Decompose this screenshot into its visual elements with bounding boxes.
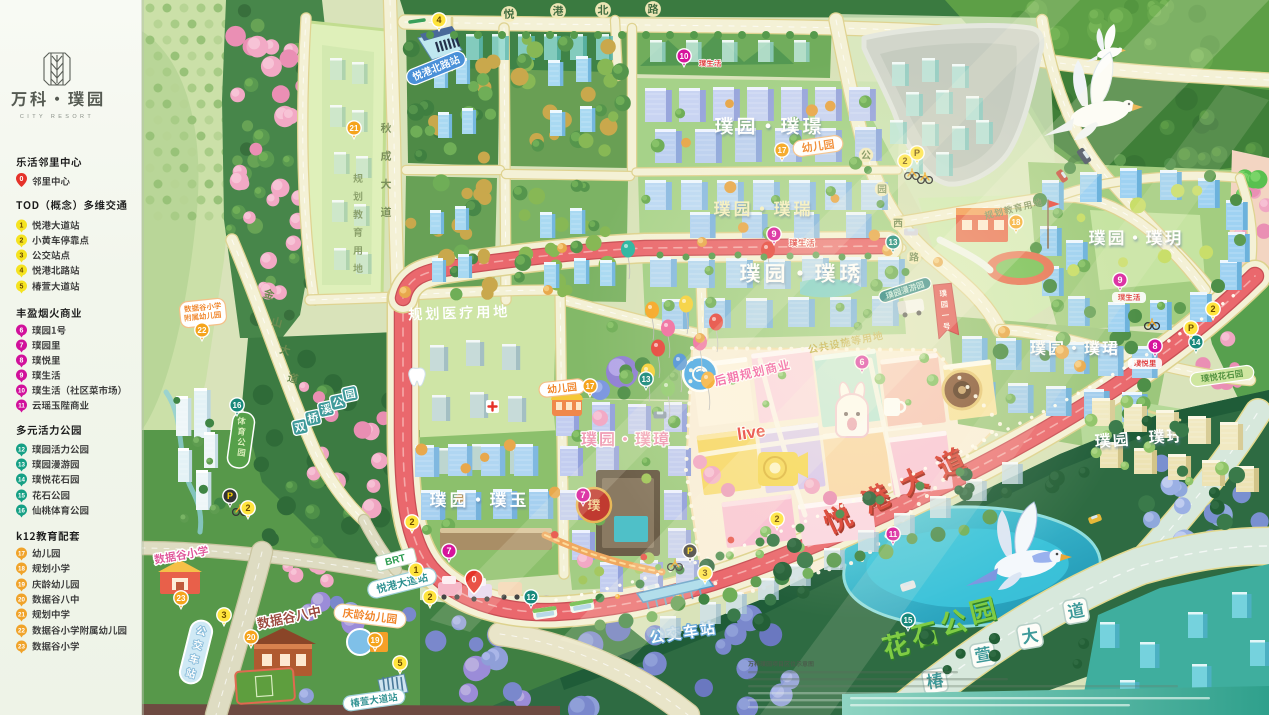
svg-text:19: 19 [18,582,25,589]
svg-text:13: 13 [18,462,25,469]
svg-text:2: 2 [427,592,432,602]
svg-text:14: 14 [1192,338,1201,347]
svg-text:1: 1 [413,565,418,575]
svg-text:7: 7 [20,343,24,350]
svg-text:20: 20 [18,597,25,604]
svg-text:14: 14 [18,477,25,484]
svg-text:2: 2 [1210,304,1215,314]
svg-text:22: 22 [198,326,207,335]
svg-text:12: 12 [527,593,536,602]
svg-text:2: 2 [409,517,414,527]
svg-text:22: 22 [18,628,25,635]
svg-text:11: 11 [18,403,25,410]
svg-text:9: 9 [20,373,24,380]
svg-text:18: 18 [18,566,25,573]
svg-text:CITY RESORT: CITY RESORT [20,114,94,120]
svg-text:6: 6 [20,328,24,335]
svg-text:12: 12 [18,447,25,454]
svg-text:15: 15 [18,493,25,500]
svg-text:8: 8 [20,358,24,365]
svg-text:8: 8 [1152,341,1157,351]
svg-text:2: 2 [20,238,24,245]
svg-text:23: 23 [177,594,186,603]
svg-text:2: 2 [245,503,250,513]
svg-text:3: 3 [20,253,24,260]
svg-text:17: 17 [18,551,25,558]
svg-text:10: 10 [680,52,689,61]
svg-text:23: 23 [18,644,25,651]
svg-text:0: 0 [20,176,24,183]
svg-text:16: 16 [233,401,242,410]
svg-text:5: 5 [20,284,24,291]
svg-text:15: 15 [904,616,913,625]
svg-text:4: 4 [20,268,24,275]
svg-text:10: 10 [18,388,25,395]
svg-text:5: 5 [397,658,402,668]
svg-text:P: P [1188,323,1194,333]
svg-text:21: 21 [350,124,359,133]
svg-text:4: 4 [436,15,441,25]
svg-text:16: 16 [18,508,25,515]
svg-text:1: 1 [20,223,24,230]
svg-text:3: 3 [221,610,226,620]
svg-text:20: 20 [247,633,256,642]
svg-text:P: P [227,491,233,501]
svg-text:21: 21 [18,612,25,619]
svg-text:7: 7 [446,546,451,556]
svg-text:19: 19 [371,636,380,645]
